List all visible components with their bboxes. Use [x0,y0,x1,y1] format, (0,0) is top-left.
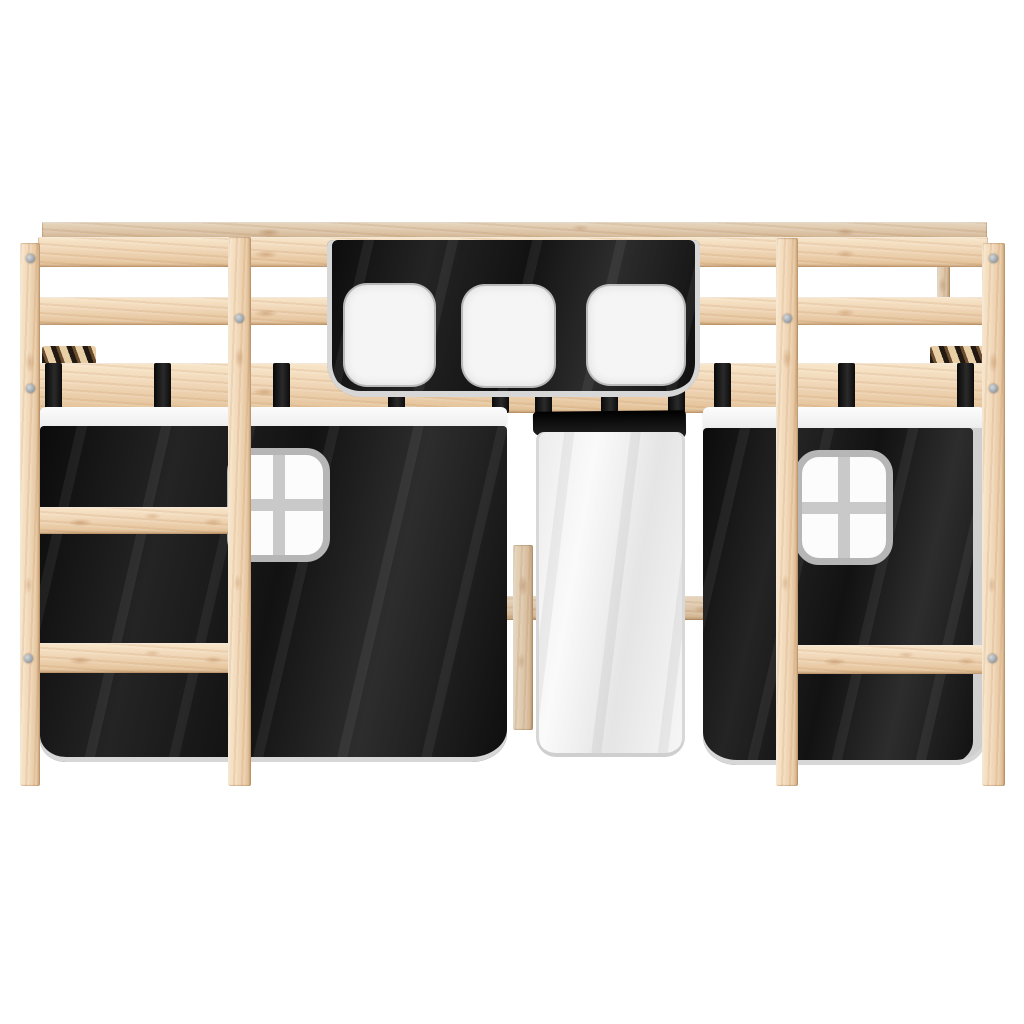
left-outer-post [20,243,40,786]
curtain-strap [273,363,290,413]
screw-icon [26,254,35,263]
curtain-strap [838,363,855,413]
window-mullion-horizontal [802,502,886,514]
valance-window [463,286,554,386]
curtain-strap [45,363,62,413]
top-valance-black [327,240,700,397]
curtain-strap [957,363,974,413]
left-ladder-rung-upper [28,507,246,534]
screw-icon [988,654,997,663]
screw-icon [989,384,998,393]
valance-window [345,285,434,385]
screw-icon [24,654,33,663]
screw-icon [235,314,244,323]
left-ladder-rung-lower [28,643,246,673]
valance-window [588,286,684,384]
screw-icon [783,314,792,323]
screw-icon [26,384,35,393]
right-ladder-rung [783,645,999,674]
center-support-leg [513,545,533,730]
curtain-strap [714,363,731,413]
product-photo-loft-bed [0,0,1024,1024]
center-curtain-white-panel [536,432,685,757]
right-curtain-window [795,450,893,565]
screw-icon [989,254,998,263]
curtain-strap [154,363,171,413]
right-outer-post [982,243,1005,786]
